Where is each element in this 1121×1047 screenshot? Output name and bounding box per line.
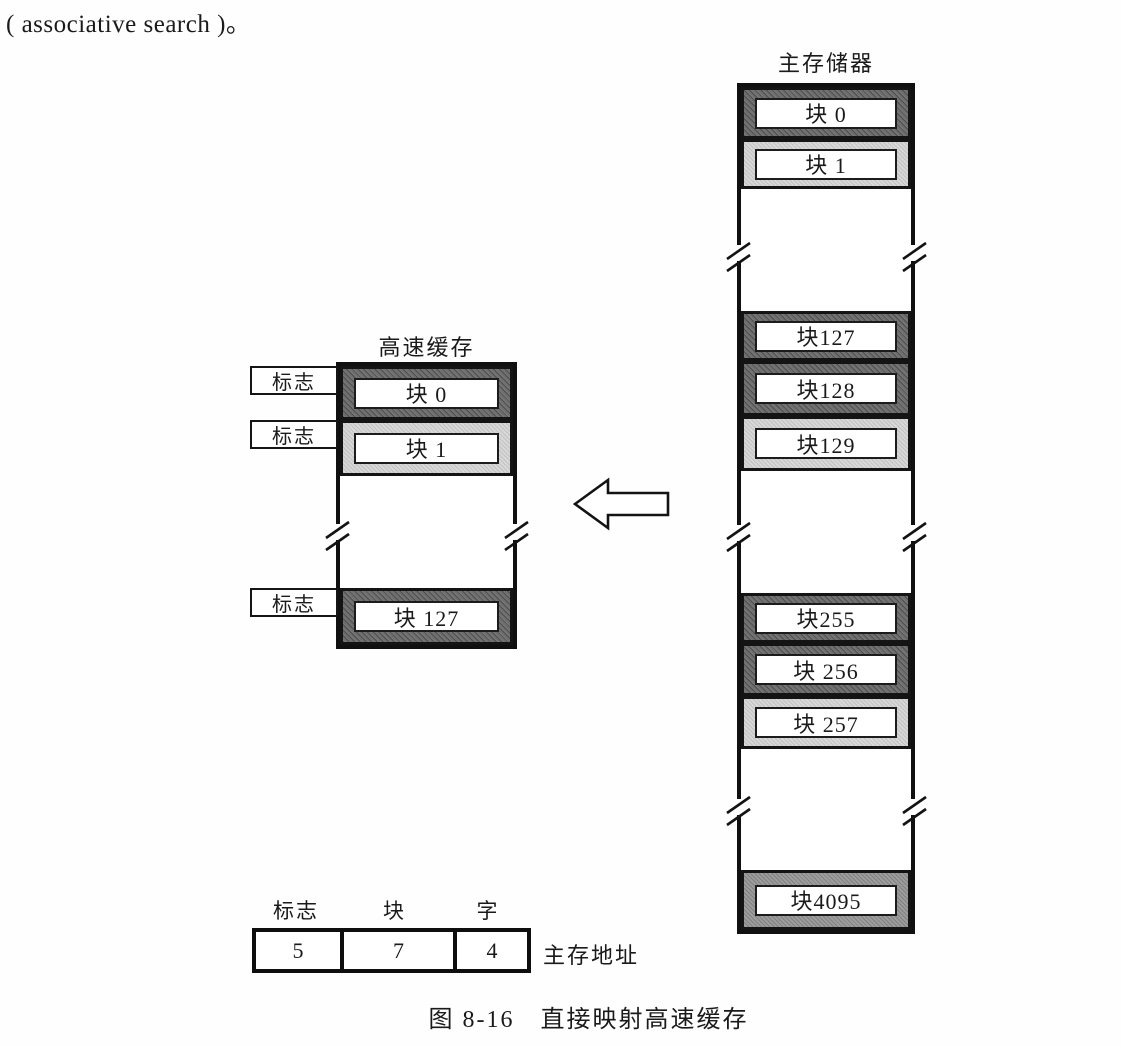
- memory-block-label: 块 0: [755, 98, 897, 129]
- cache-ellipsis-gap: [340, 476, 513, 588]
- memory-block-1: 块 1: [741, 139, 911, 189]
- memory-block-label: 块128: [755, 373, 897, 404]
- address-bits-word: 4: [453, 928, 531, 973]
- memory-block-0: 块 0: [741, 87, 911, 139]
- break-mark-icon: [898, 513, 930, 553]
- memory-ellipsis-gap: [741, 749, 911, 870]
- cache-box: 块 0 块 1 块 127: [336, 362, 517, 649]
- textbook-figure-page: ( associative search )。 高速缓存 块 0 块 1 块 1…: [0, 0, 1121, 1047]
- memory-block-129: 块129: [741, 416, 911, 471]
- main-memory-title: 主存储器: [737, 46, 915, 78]
- address-field-label-word: 字: [449, 895, 527, 925]
- break-mark-icon: [898, 233, 930, 273]
- cache-block-label: 块 1: [354, 433, 499, 464]
- cache-block-label: 块 0: [354, 378, 499, 409]
- break-mark-icon: [722, 513, 754, 553]
- cache-block-label: 块 127: [354, 601, 499, 632]
- address-field-label-block: 块: [336, 895, 453, 925]
- memory-block-label: 块129: [755, 428, 897, 459]
- main-memory-box: 块 0 块 1 块127 块128 块129: [737, 83, 915, 934]
- memory-block-256: 块 256: [741, 643, 911, 696]
- break-mark-icon: [500, 512, 532, 552]
- memory-block-128: 块128: [741, 361, 911, 416]
- break-mark-icon: [722, 787, 754, 827]
- memory-block-label: 块127: [755, 321, 897, 352]
- address-bits-tag: 5: [252, 928, 344, 973]
- break-mark-icon: [722, 233, 754, 273]
- address-caption: 主存地址: [543, 938, 639, 970]
- memory-ellipsis-gap: [741, 189, 911, 311]
- break-mark-icon: [321, 512, 353, 552]
- tag-box: 标志: [250, 366, 338, 395]
- tag-box: 标志: [250, 588, 338, 617]
- cache-block-127: 块 127: [340, 588, 513, 645]
- memory-block-257: 块 257: [741, 696, 911, 749]
- memory-block-127: 块127: [741, 311, 911, 361]
- memory-ellipsis-gap: [741, 471, 911, 593]
- cache-block-0: 块 0: [340, 366, 513, 420]
- memory-block-255: 块255: [741, 593, 911, 643]
- figure-caption: 图 8-16 直接映射高速缓存: [28, 999, 1121, 1034]
- memory-block-4095: 块4095: [741, 870, 911, 930]
- memory-block-label: 块 257: [755, 707, 897, 738]
- memory-block-label: 块255: [755, 603, 897, 634]
- tag-box: 标志: [250, 420, 338, 449]
- address-field-label-tag: 标志: [252, 895, 340, 925]
- cache-block-1: 块 1: [340, 420, 513, 476]
- left-arrow-icon: [572, 477, 672, 531]
- memory-block-label: 块4095: [755, 885, 897, 916]
- break-mark-icon: [898, 787, 930, 827]
- address-bits-block: 7: [340, 928, 457, 973]
- memory-block-label: 块 1: [755, 149, 897, 180]
- memory-block-label: 块 256: [755, 654, 897, 685]
- cache-title: 高速缓存: [336, 330, 517, 362]
- paragraph-fragment: ( associative search )。: [6, 4, 251, 40]
- address-format-boxes: 5 7 4: [252, 928, 531, 973]
